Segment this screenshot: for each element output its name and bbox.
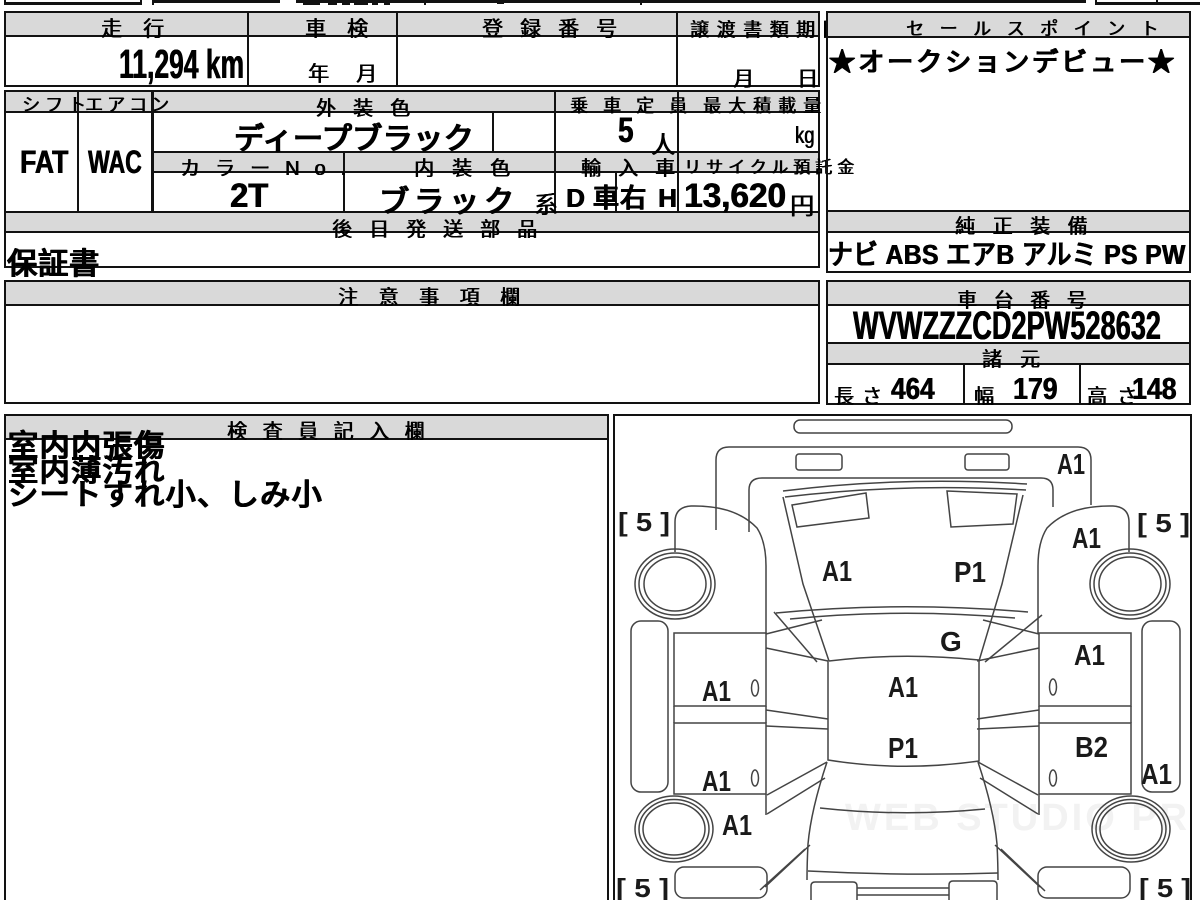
svg-text:A1: A1 — [702, 766, 731, 798]
svg-text:[ 5 ]: [ 5 ] — [1137, 508, 1190, 538]
svg-text:A1: A1 — [1072, 523, 1101, 555]
svg-text:A1: A1 — [1141, 759, 1172, 791]
svg-text:A1: A1 — [722, 810, 752, 842]
svg-text:[ 5 ]: [ 5 ] — [1139, 873, 1191, 900]
svg-text:G: G — [940, 626, 962, 657]
svg-text:A1: A1 — [702, 676, 731, 708]
svg-text:B2: B2 — [1075, 732, 1108, 764]
svg-text:P1: P1 — [954, 557, 986, 589]
svg-text:P1: P1 — [888, 733, 918, 765]
svg-text:A1: A1 — [888, 672, 918, 704]
svg-text:[ 5 ]: [ 5 ] — [616, 873, 669, 900]
svg-text:A1: A1 — [1057, 449, 1085, 481]
svg-text:[ 5 ]: [ 5 ] — [618, 507, 670, 537]
svg-text:A1: A1 — [822, 556, 852, 588]
svg-text:A1: A1 — [1074, 640, 1105, 672]
